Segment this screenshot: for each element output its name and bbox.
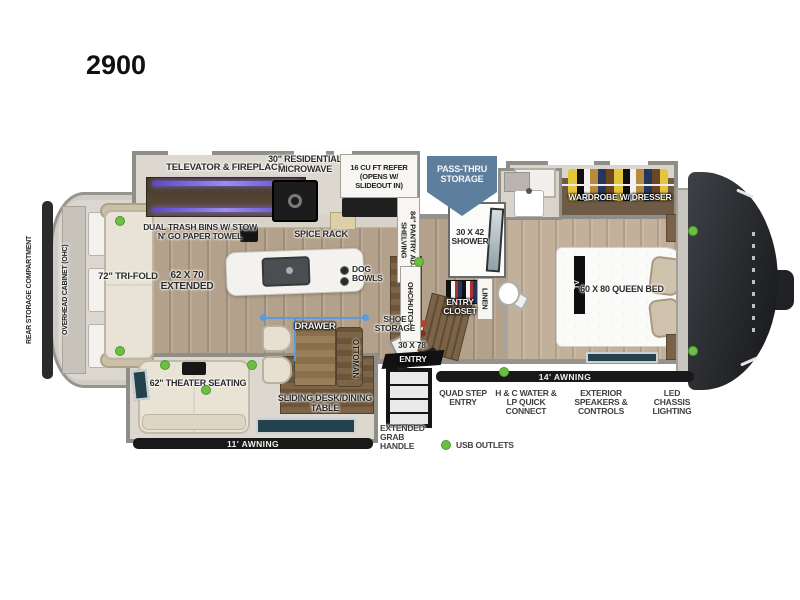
quad-step-label: QUAD STEP ENTRY [436,389,490,407]
shoe-storage-label: SHOE STORAGE [372,315,418,333]
drawer-cabinet [294,328,336,386]
usb-outlet-dot [688,346,698,356]
floorplan-canvas: 2900 REAR STORAGE COMPARTMENT OVERHEAD C… [0,0,800,600]
rear-storage-label: REAR STORAGE COMPARTMENT [26,204,39,376]
wardrobe-label: WARDROBE w/ DRESSER [568,193,672,202]
entry-closet-label: ENTRY CLOSET [436,298,484,316]
entry-word-label: ENTRY [388,355,438,364]
speakers-label: EXTERIOR SPEAKERS & CONTROLS [564,389,638,417]
dog-bowls-label: DOG BOWLS [352,265,398,283]
page-title: 2900 [86,50,146,81]
front-cap [688,172,778,390]
drawer-label: DRAWER [288,322,342,332]
usb-outlet-dot [160,360,170,370]
usb-outlet-dot [499,367,509,377]
overhead-cabinet-label: OVERHEAD CABINET (OHC) [62,214,86,366]
usb-outlet-dot [201,385,211,395]
chair [262,356,292,384]
bathroom-sink [514,190,544,217]
dog-bowl [340,266,349,275]
slide-track-line [264,317,366,319]
awning-left-label: 11' AWNING [227,439,279,449]
window [256,418,356,434]
entry-size-label: 30 X 78 [390,341,434,350]
usb-outlet-dot [115,346,125,356]
usb-outlet-dot [247,360,257,370]
ottoman-label: OTTOMAN [341,331,359,385]
usb-legend-label: USB OUTLETS [456,441,516,450]
slide-track-end [260,314,267,321]
spice-rack-label: SPICE RACK [288,230,354,240]
water-connect-label: H & C WATER & LP QUICK CONNECT [494,389,558,417]
faucet [286,267,293,274]
sliding-desk-label: SLIDING DESK/DINING TABLE [272,394,378,413]
usb-outlet-dot [414,257,424,267]
slide-window [548,160,594,165]
awning-bar-right: 14' AWNING [436,371,694,382]
refrigerator-label: 16 CU FT REFER (OPENS w/ SLIDEOUT IN) [340,154,418,198]
chassis-lighting-label: LED CHASSIS LIGHTING [646,389,698,417]
dog-bowl [340,277,349,286]
entry-steps [386,368,432,428]
theater-footrest [142,414,246,430]
window [586,352,658,363]
shower-label: 30 x 42 SHOWER [448,228,492,246]
queen-bed-label: 60 x 80 QUEEN BED [580,285,664,295]
usb-outlet-dot [688,226,698,236]
clothes-rod [562,184,674,186]
theater-console [182,362,206,375]
awning-bar-left: 11' AWNING [133,438,373,449]
theater-seating-label: 62" THEATER SEATING [146,379,250,389]
stove-burner [288,194,302,208]
pass-thru-label: PASS-THRU STORAGE [430,165,494,184]
sink-faucet [526,188,532,194]
toilet-bowl [497,281,520,306]
usb-outlet-dot [115,216,125,226]
grab-handle-label: EXTENDED GRAB HANDLE [380,424,430,452]
slide-window [168,150,212,155]
awning-right-label: 14' AWNING [539,372,591,382]
rear-storage-compartment [42,201,53,379]
cap-logo-marks [752,232,755,332]
usb-legend-dot [441,440,451,450]
trash-bins-label: DUAL TRASH BINS w/ STOW N' GO PAPER TOWE… [142,223,258,241]
sofa-extended-label: 62 x 70 EXTENDED [146,271,228,293]
slide-track-end [362,314,369,321]
slide-window [610,160,648,165]
